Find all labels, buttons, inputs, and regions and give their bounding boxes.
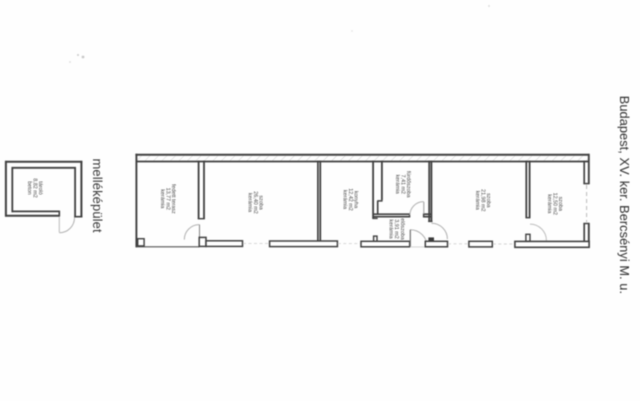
svg-text:kerámia: kerámia	[546, 194, 552, 213]
svg-text:kerámia: kerámia	[159, 189, 165, 208]
svg-text:kerámia: kerámia	[388, 219, 394, 238]
svg-text:melléképület: melléképület	[90, 159, 105, 233]
svg-text:kerámia: kerámia	[246, 193, 252, 212]
svg-text:kerámia: kerámia	[474, 191, 480, 210]
svg-text:Budapest, XV. ker. Bercsényi M: Budapest, XV. ker. Bercsényi M. u.	[617, 96, 632, 294]
svg-text:beton: beton	[26, 181, 32, 195]
svg-text:kerámia: kerámia	[341, 190, 347, 209]
svg-text:kerámia: kerámia	[394, 175, 400, 194]
